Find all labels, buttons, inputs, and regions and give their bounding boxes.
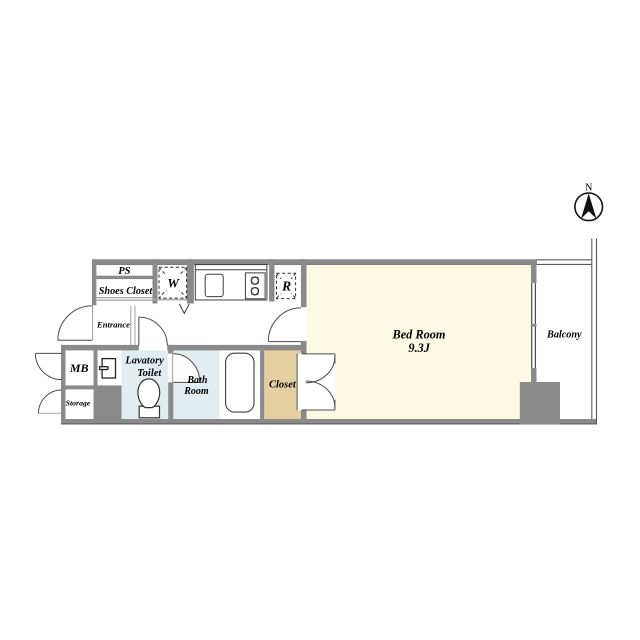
svg-text:Storage: Storage — [66, 399, 91, 408]
svg-text:Entrance: Entrance — [96, 319, 130, 329]
svg-text:Bed Room: Bed Room — [392, 328, 446, 342]
svg-text:Bath: Bath — [186, 375, 207, 386]
svg-text:Balcony: Balcony — [546, 329, 582, 340]
svg-text:W: W — [167, 276, 180, 291]
svg-text:N: N — [585, 183, 592, 194]
svg-text:MB: MB — [69, 361, 89, 375]
svg-text:Lavatory: Lavatory — [124, 355, 164, 366]
svg-text:9.3J: 9.3J — [408, 341, 430, 355]
svg-text:Closet: Closet — [269, 379, 297, 390]
svg-text:Room: Room — [183, 386, 209, 397]
svg-text:Toilet: Toilet — [137, 368, 162, 379]
svg-text:R: R — [281, 279, 291, 294]
svg-text:Shoes Closet: Shoes Closet — [99, 286, 154, 297]
svg-text:PS: PS — [118, 266, 130, 277]
